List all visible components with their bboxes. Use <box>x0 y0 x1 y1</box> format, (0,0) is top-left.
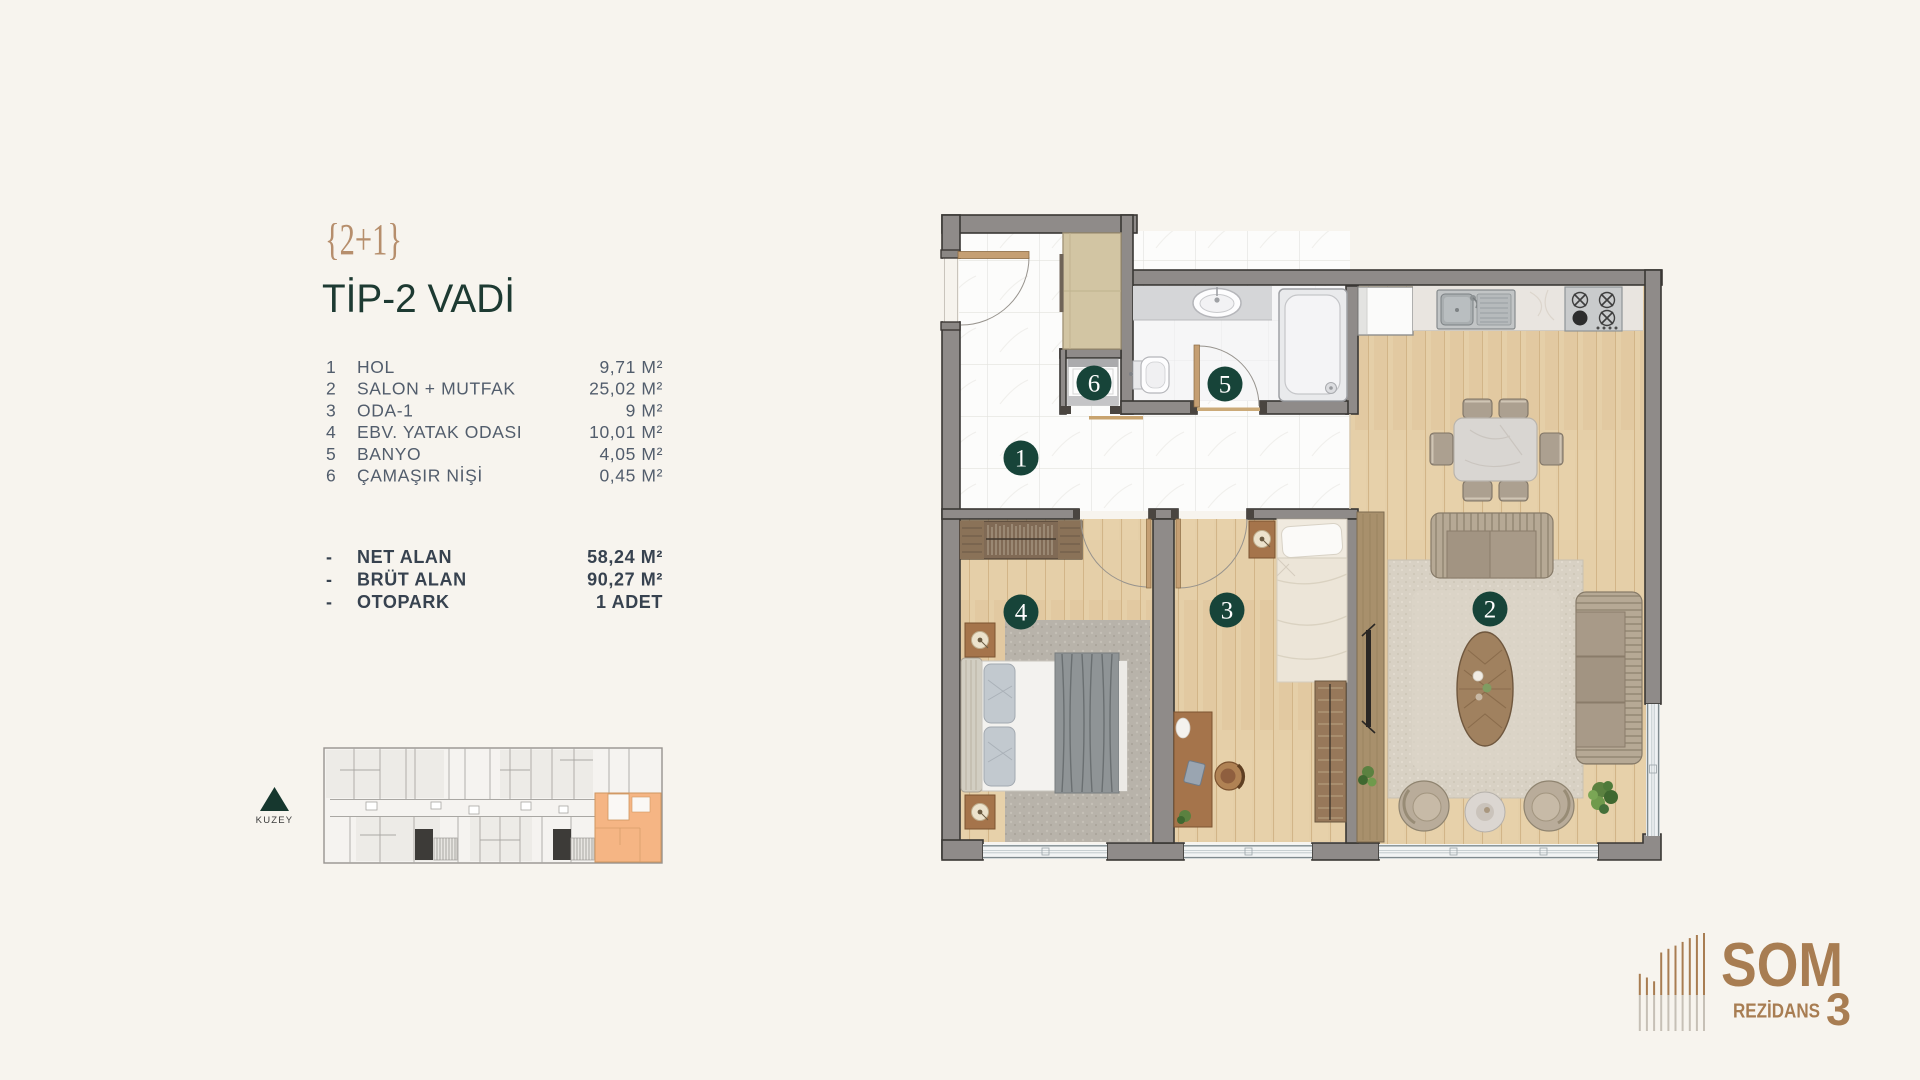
svg-text:BANYO: BANYO <box>357 444 421 464</box>
svg-text:SOM: SOM <box>1721 931 1843 1000</box>
svg-text:4,05 M²: 4,05 M² <box>599 444 663 464</box>
svg-text:-: - <box>326 592 333 612</box>
svg-text:OTOPARK: OTOPARK <box>357 592 450 612</box>
svg-text:EBV. YATAK ODASI: EBV. YATAK ODASI <box>357 422 522 442</box>
svg-text:KUZEY: KUZEY <box>256 815 294 826</box>
svg-text:3: 3 <box>1826 984 1851 1035</box>
svg-text:1: 1 <box>326 357 336 377</box>
svg-text:4: 4 <box>1015 600 1028 627</box>
svg-text:0,45 M²: 0,45 M² <box>599 466 663 486</box>
svg-text:58,24 M²: 58,24 M² <box>587 547 663 567</box>
svg-text:5: 5 <box>326 444 336 464</box>
svg-text:NET ALAN: NET ALAN <box>357 547 452 567</box>
svg-text:-: - <box>326 570 333 590</box>
svg-text:9,71 M²: 9,71 M² <box>599 357 663 377</box>
svg-text:BRÜT ALAN: BRÜT ALAN <box>357 570 467 590</box>
svg-text:SALON + MUTFAK: SALON + MUTFAK <box>357 379 516 399</box>
svg-text:2: 2 <box>1484 597 1497 624</box>
svg-text:6: 6 <box>326 466 336 486</box>
svg-text:2: 2 <box>326 379 336 399</box>
svg-text:{2+1}: {2+1} <box>325 215 402 264</box>
svg-text:3: 3 <box>326 400 336 420</box>
svg-text:6: 6 <box>1088 371 1101 398</box>
svg-text:-: - <box>326 547 333 567</box>
svg-text:4: 4 <box>326 422 336 442</box>
svg-text:90,27 M²: 90,27 M² <box>587 570 663 590</box>
svg-text:HOL: HOL <box>357 357 395 377</box>
svg-text:ÇAMAŞIR NİŞİ: ÇAMAŞIR NİŞİ <box>357 466 483 486</box>
svg-text:25,02 M²: 25,02 M² <box>589 379 663 399</box>
svg-text:10,01 M²: 10,01 M² <box>589 422 663 442</box>
svg-text:ODA-1: ODA-1 <box>357 400 413 420</box>
svg-text:3: 3 <box>1221 598 1234 625</box>
svg-text:1: 1 <box>1015 446 1028 473</box>
svg-text:TİP-2 VADİ: TİP-2 VADİ <box>322 276 515 321</box>
svg-text:REZİDANS: REZİDANS <box>1733 1000 1820 1023</box>
svg-text:1 ADET: 1 ADET <box>596 592 663 612</box>
svg-text:5: 5 <box>1219 372 1232 399</box>
svg-text:9 M²: 9 M² <box>626 400 663 420</box>
